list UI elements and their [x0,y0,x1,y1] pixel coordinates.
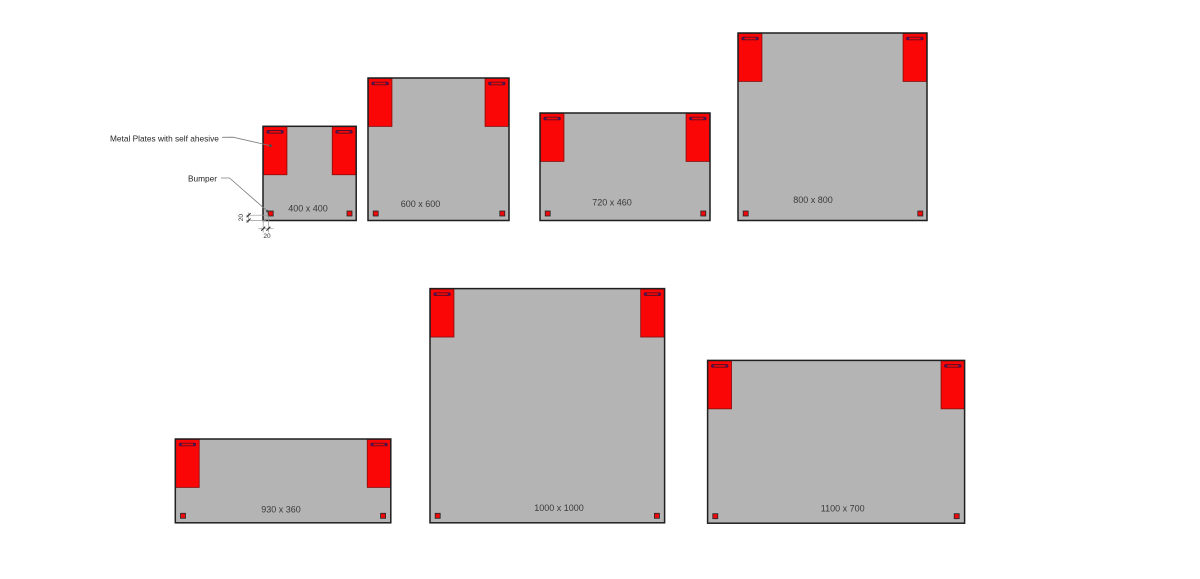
svg-text:800 x 800: 800 x 800 [793,195,833,205]
svg-text:Bumper: Bumper [188,174,217,184]
svg-text:20: 20 [238,214,245,222]
svg-text:600 x 600: 600 x 600 [401,199,441,209]
svg-text:Metal Plates with self ahesive: Metal Plates with self ahesive [110,133,219,143]
svg-text:20: 20 [263,233,271,240]
svg-text:400 x 400: 400 x 400 [288,203,328,213]
svg-text:720 x 460: 720 x 460 [592,197,632,207]
svg-text:930 x 360: 930 x 360 [261,505,301,515]
svg-text:1100 x 700: 1100 x 700 [821,503,865,513]
svg-text:1000 x 1000: 1000 x 1000 [534,503,584,513]
